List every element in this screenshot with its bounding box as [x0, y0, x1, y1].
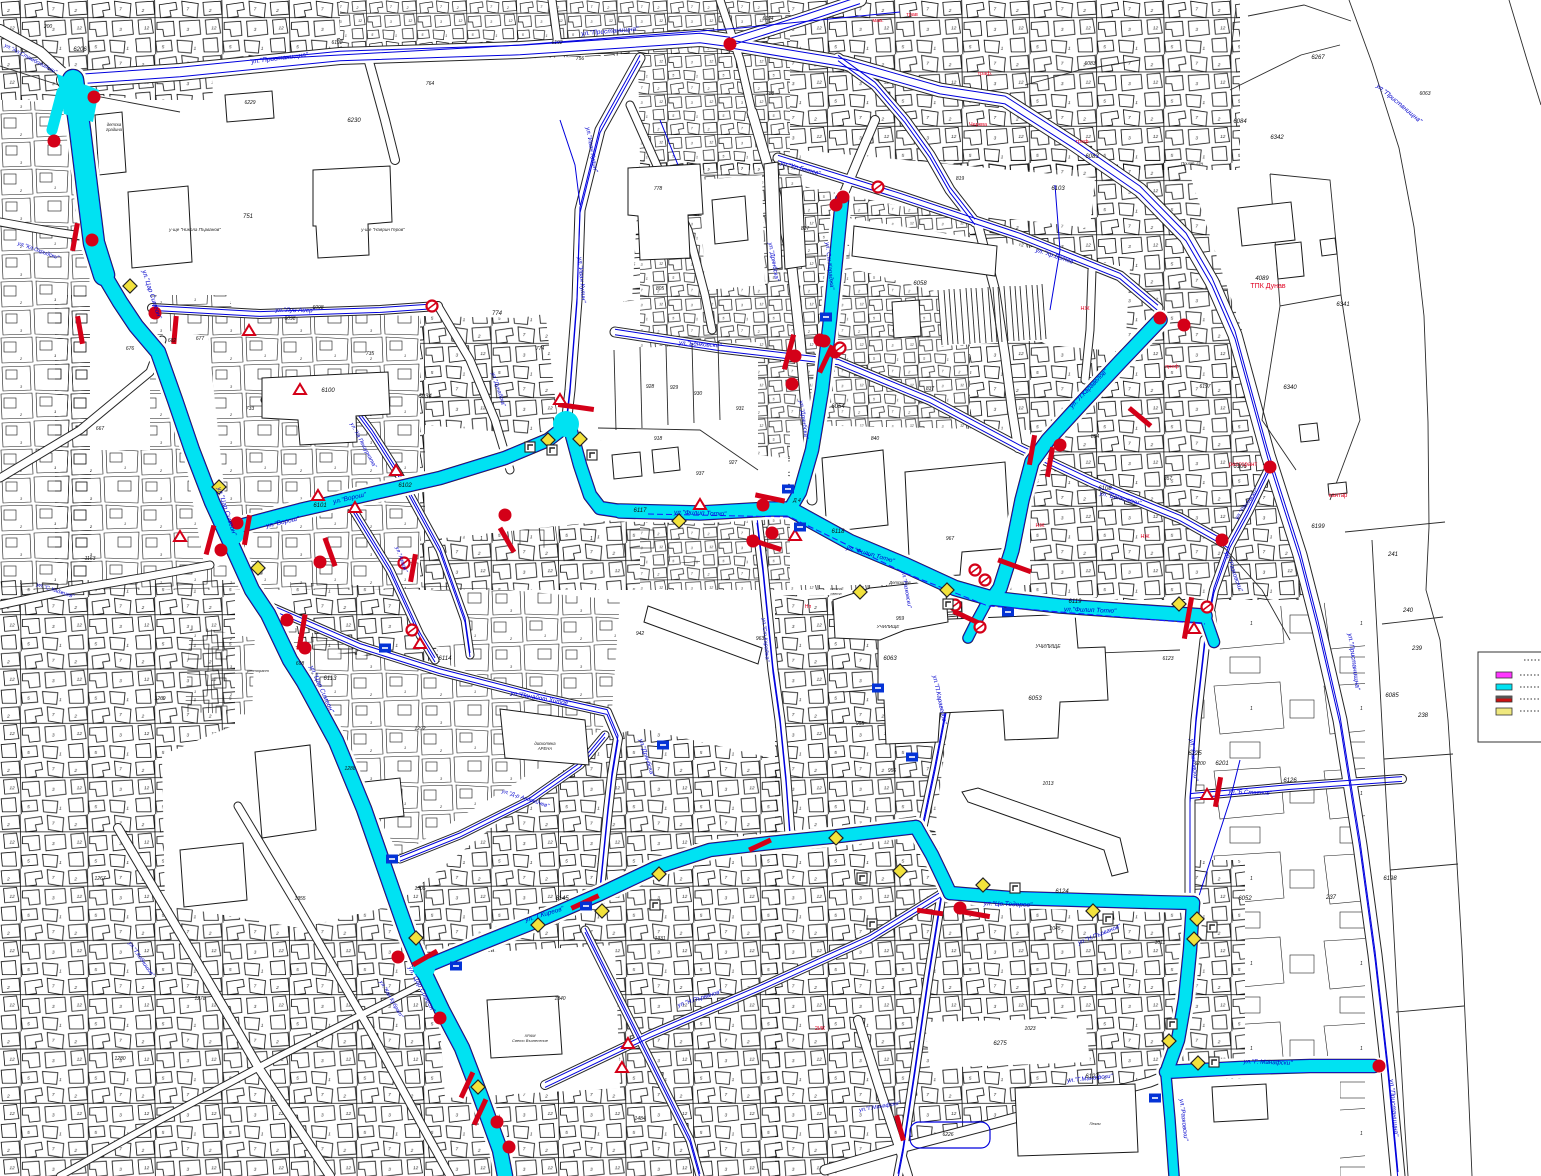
svg-text:6123: 6123 [1162, 656, 1173, 662]
svg-text:НЖ: НЖ [1035, 523, 1044, 529]
svg-text:6052: 6052 [1238, 896, 1252, 902]
svg-text:6098: 6098 [284, 316, 295, 322]
svg-text:967: 967 [946, 536, 955, 542]
svg-text:6098: 6098 [312, 305, 323, 311]
svg-text:959: 959 [896, 616, 905, 622]
svg-text:6341: 6341 [1336, 302, 1349, 308]
svg-text:931: 931 [736, 406, 745, 412]
svg-text:1269: 1269 [154, 696, 165, 702]
svg-text:трав: трав [906, 12, 918, 18]
svg-text:6085: 6085 [1385, 693, 1399, 699]
svg-text:НЖ: НЖ [1140, 534, 1149, 540]
svg-text:петна: петна [830, 587, 842, 591]
svg-text:240: 240 [1402, 608, 1414, 614]
svg-text:ресторант: ресторант [1229, 462, 1258, 468]
svg-text:6230: 6230 [347, 118, 361, 124]
svg-text:1355: 1355 [294, 896, 305, 902]
svg-text:774: 774 [536, 346, 545, 352]
svg-text:УЧИЛИЩЕ: УЧИЛИЩЕ [1035, 644, 1061, 650]
svg-text:АРЕНА: АРЕНА [537, 746, 552, 751]
svg-text:6108: 6108 [1098, 486, 1112, 492]
svg-text:6103: 6103 [1051, 186, 1065, 192]
svg-text:6126: 6126 [1283, 778, 1297, 784]
svg-text:6084: 6084 [1233, 119, 1247, 125]
svg-text:942: 942 [636, 631, 645, 637]
svg-text:ресторант: ресторант [246, 668, 270, 673]
svg-text:6117: 6117 [634, 508, 648, 514]
svg-text:Пекач: Пекач [1089, 1121, 1100, 1126]
svg-text:764: 764 [426, 81, 435, 87]
svg-text:6114: 6114 [439, 656, 453, 662]
svg-text:градина: градина [106, 127, 123, 132]
svg-text:854: 854 [1091, 434, 1100, 440]
svg-text:6118: 6118 [832, 529, 846, 535]
svg-text:4089: 4089 [1255, 276, 1269, 282]
svg-text:6058: 6058 [913, 281, 927, 287]
svg-text:светл: светл [830, 592, 842, 596]
svg-text:ТПК Дунав: ТПК Дунав [1250, 283, 1285, 290]
svg-text:6124: 6124 [1055, 889, 1069, 895]
svg-text:837: 837 [926, 386, 935, 392]
svg-text:667: 667 [96, 426, 105, 432]
svg-text:УЧИЛИЩЕ: УЧИЛИЩЕ [877, 624, 901, 629]
svg-text:6063: 6063 [883, 656, 897, 662]
svg-text:1340: 1340 [554, 996, 565, 1002]
svg-text:927: 927 [729, 460, 738, 466]
svg-text:у-ще "Никола Първанов": у-ще "Никола Първанов" [168, 227, 221, 232]
svg-text:у-ще "Наярин Геров": у-ще "Наярин Геров" [360, 227, 405, 232]
svg-text:963: 963 [756, 636, 765, 642]
svg-text:6198: 6198 [1383, 876, 1397, 882]
svg-text:6083: 6083 [1084, 61, 1095, 67]
svg-text:1484: 1484 [634, 1116, 645, 1122]
svg-text:930: 930 [694, 391, 703, 397]
svg-text:237: 237 [1325, 895, 1337, 901]
svg-text:6034: 6034 [418, 394, 432, 400]
svg-text:6199: 6199 [1311, 524, 1325, 530]
svg-text:6201: 6201 [1215, 761, 1228, 767]
svg-text:Прист. сгч: Прист. сгч [1181, 161, 1204, 166]
svg-text:774: 774 [492, 311, 503, 317]
svg-text:6197: 6197 [1199, 384, 1210, 390]
svg-text:6340: 6340 [1283, 385, 1297, 391]
svg-text:1163: 1163 [85, 556, 96, 562]
svg-text:6192: 6192 [551, 40, 562, 46]
svg-text:6192: 6192 [331, 40, 342, 46]
svg-text:6194: 6194 [762, 16, 773, 22]
svg-text:6342: 6342 [1270, 135, 1284, 141]
svg-text:преф: преф [1165, 364, 1179, 370]
svg-text:6127: 6127 [1085, 1074, 1099, 1080]
svg-text:6206: 6206 [73, 47, 87, 53]
svg-text:Детски юг: Детски юг [888, 580, 910, 585]
svg-text:1045: 1045 [1049, 926, 1060, 932]
svg-text:929: 929 [670, 385, 679, 391]
svg-text:1292: 1292 [414, 726, 425, 732]
svg-text:239: 239 [1411, 646, 1423, 652]
svg-text:треф: треф [1075, 139, 1089, 145]
svg-text:756: 756 [576, 56, 585, 62]
svg-text:1280: 1280 [114, 1056, 125, 1062]
svg-text:6101: 6101 [313, 503, 326, 509]
svg-text:751: 751 [243, 214, 253, 220]
svg-text:6229: 6229 [244, 100, 255, 106]
svg-text:6054: 6054 [831, 404, 845, 410]
svg-text:1013: 1013 [1042, 781, 1053, 787]
svg-text:1331: 1331 [654, 936, 665, 942]
svg-text:956: 956 [888, 768, 897, 774]
svg-text:817: 817 [801, 226, 810, 232]
svg-text:928: 928 [646, 384, 655, 390]
svg-text:6145: 6145 [555, 896, 569, 902]
svg-text:6200: 6200 [1194, 761, 1205, 767]
svg-text:6125: 6125 [1188, 751, 1202, 757]
svg-text:Черква: Черква [969, 122, 988, 128]
svg-text:1011: 1011 [1155, 940, 1166, 946]
svg-text:Свето Възнесение: Свето Възнесение [512, 1038, 549, 1043]
svg-text:840: 840 [871, 436, 880, 442]
svg-text:698: 698 [296, 661, 305, 667]
svg-text:955: 955 [856, 721, 865, 727]
svg-text:НЖ: НЖ [1080, 306, 1089, 312]
svg-text:1267: 1267 [94, 876, 105, 882]
svg-text:937: 937 [696, 471, 705, 477]
svg-text:735: 735 [366, 351, 375, 357]
svg-text:6275: 6275 [993, 1041, 1007, 1047]
svg-text:918: 918 [654, 436, 663, 442]
svg-text:6102: 6102 [398, 483, 412, 489]
svg-text:ул."Луи Айер": ул."Луи Айер" [274, 307, 315, 315]
svg-text:733: 733 [246, 406, 255, 412]
svg-text:788: 788 [766, 91, 775, 97]
svg-text:682: 682 [168, 338, 177, 344]
svg-text:1288: 1288 [344, 766, 355, 772]
svg-text:805: 805 [656, 286, 665, 292]
svg-text:1023: 1023 [1024, 1026, 1035, 1032]
svg-text:857: 857 [1164, 476, 1173, 482]
svg-text:1278: 1278 [194, 996, 205, 1002]
svg-text:241: 241 [1387, 552, 1398, 558]
svg-text:6100: 6100 [321, 388, 335, 394]
svg-text:траф.: траф. [978, 71, 993, 77]
svg-text:676: 676 [126, 346, 135, 352]
svg-text:мав.: мав. [872, 18, 884, 24]
svg-text:778: 778 [654, 186, 663, 192]
svg-text:200: 200 [43, 24, 53, 30]
svg-text:819: 819 [956, 176, 965, 182]
svg-text:677: 677 [196, 336, 205, 342]
svg-text:6226: 6226 [942, 1132, 953, 1138]
svg-text:6113: 6113 [324, 676, 338, 682]
svg-text:1305: 1305 [414, 886, 425, 892]
svg-text:кантар: кантар [1329, 493, 1348, 499]
svg-text:6063: 6063 [1419, 91, 1430, 97]
svg-text:6053: 6053 [1028, 696, 1042, 702]
svg-text:2ИК: 2ИК [815, 1026, 826, 1032]
svg-text:6083: 6083 [1085, 154, 1099, 160]
svg-text:6267: 6267 [1311, 55, 1325, 61]
svg-text:Нл: Нл [805, 604, 812, 610]
svg-text:6119: 6119 [1069, 599, 1083, 605]
svg-text:238: 238 [1417, 713, 1429, 719]
svg-text:Д 4: Д 4 [792, 498, 801, 504]
